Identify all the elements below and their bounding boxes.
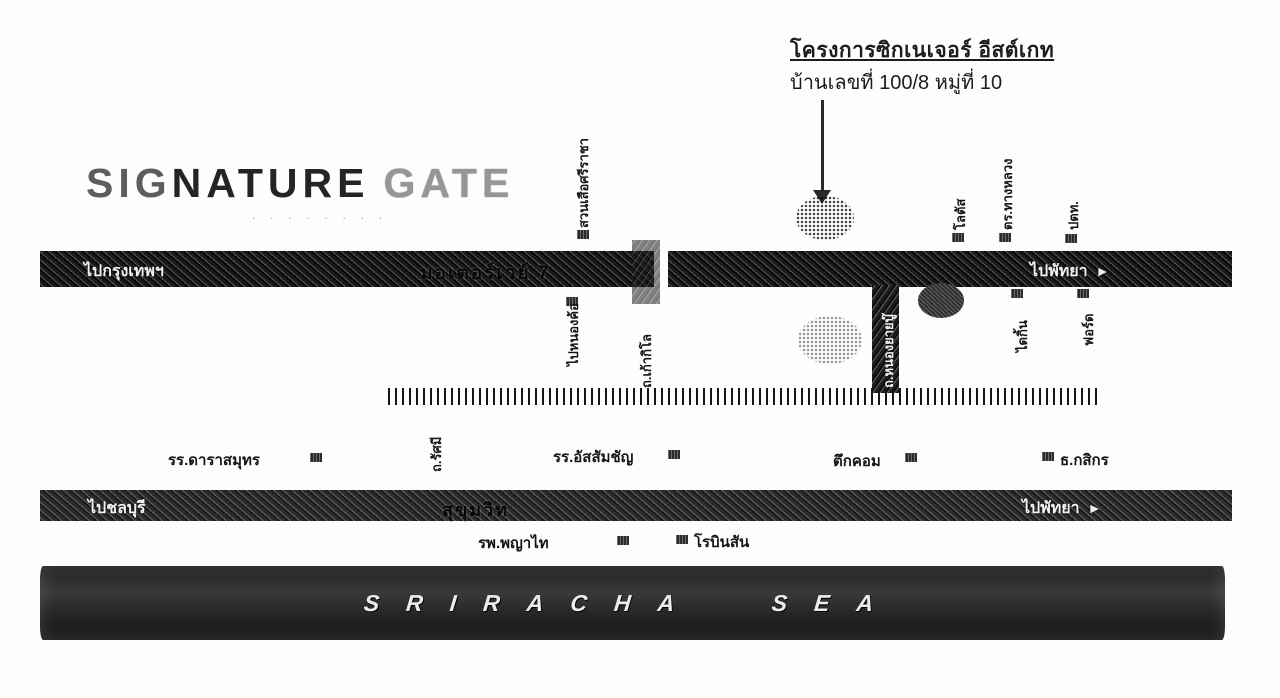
daikin-label: ไดกิ้น <box>1012 302 1033 352</box>
pond-shape <box>918 283 964 318</box>
tukcom-icon <box>905 453 917 462</box>
sriracha-sea-band: SRIRACHA SEA <box>40 566 1225 640</box>
signature-gate-logo: SIGNATUREGATE <box>86 160 514 207</box>
railway-line <box>388 388 1100 405</box>
right-arrow-icon: ► <box>1096 263 1110 279</box>
motorway-right-destination: ไปพัทยา► <box>1030 259 1110 284</box>
right-arrow-icon: ► <box>1088 500 1102 516</box>
lotus-icon <box>952 233 964 242</box>
nong-kho-label: ไปหนองค้อ <box>563 312 584 366</box>
logo-tagline: · · · · · · · · <box>252 213 388 224</box>
lotus-label: โลตัส <box>950 168 971 230</box>
assumption-school-icon <box>668 450 680 459</box>
sukhumvit-name: สุขุมวิท <box>442 495 509 524</box>
daikin-icon <box>1011 289 1023 298</box>
darasamutr-school-icon <box>310 453 322 462</box>
highway-police-label: ตร.ทางหลวง <box>997 150 1018 230</box>
phyathai-hospital-label: รพ.พญาไท <box>478 531 549 555</box>
motorway-road-segment-right <box>668 251 1232 287</box>
darasamutr-school-label: รร.ดาราสมุทร <box>168 448 260 472</box>
robinson-label: โรบินสัน <box>694 530 749 554</box>
project-site-blob <box>796 196 854 240</box>
highway-police-icon <box>999 233 1011 242</box>
tiger-zoo-label: สวนเสือศรีราชา <box>573 132 594 228</box>
ford-icon <box>1077 289 1089 298</box>
assumption-school-label: รร.อัสสัมชัญ <box>553 445 633 469</box>
kasikorn-bank-label: ธ.กสิกร <box>1060 448 1109 472</box>
tiger-zoo-icon <box>577 230 589 239</box>
scanned-location-map: โครงการซิกเนเจอร์ อีสต์เกท บ้านเลขที่ 10… <box>0 0 1280 698</box>
logo-part-3: GATE <box>383 160 514 206</box>
rasami-road-label: ถ.รัศมี <box>426 408 447 472</box>
secondary-site-blob <box>798 316 862 364</box>
project-title: โครงการซิกเนเจอร์ อีสต์เกท <box>790 34 1054 67</box>
callout-arrow-line <box>821 100 824 195</box>
sea-label: SRIRACHA SEA <box>363 590 902 617</box>
ptt-icon <box>1065 234 1077 243</box>
kao-kilo-road-stripe <box>632 240 660 304</box>
motorway-name: มอเตอร์เวย์ 7 <box>420 258 551 288</box>
motorway-left-destination: ไปกรุงเทพฯ <box>84 259 164 284</box>
phyathai-hospital-icon <box>617 536 629 545</box>
sukhumvit-left-destination: ไปชลบุรี <box>88 496 146 521</box>
logo-part-1: SIG <box>86 160 172 206</box>
project-address: บ้านเลขที่ 100/8 หมู่ที่ 10 <box>790 66 1002 98</box>
nong-yai-bu-road-label: ถ.หนองยายบู๊ <box>878 292 899 388</box>
ford-label: ฟอร์ด <box>1078 300 1099 346</box>
kasikorn-bank-icon <box>1042 452 1054 461</box>
robinson-icon <box>676 535 688 544</box>
kao-kilo-road-label: ถ.เก้ากิโล <box>636 300 657 388</box>
logo-part-2: NATURE <box>172 160 370 206</box>
sukhumvit-right-destination: ไปพัทยา► <box>1022 496 1102 521</box>
tukcom-label: ตึกคอม <box>833 449 881 473</box>
ptt-label: ปตท. <box>1063 184 1084 230</box>
